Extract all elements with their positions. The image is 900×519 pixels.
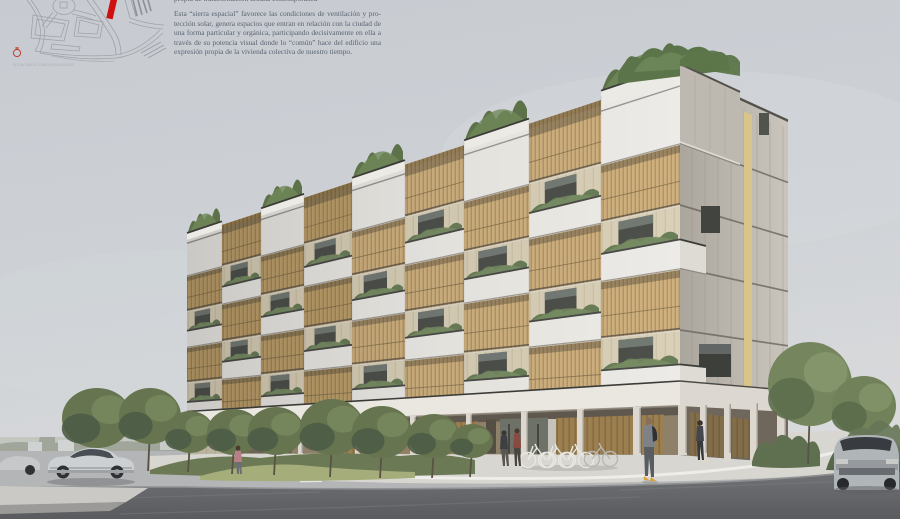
svg-text:SITUACION C/ LLANOS ESCUDEROS: SITUACION C/ LLANOS ESCUDEROS	[13, 63, 74, 67]
